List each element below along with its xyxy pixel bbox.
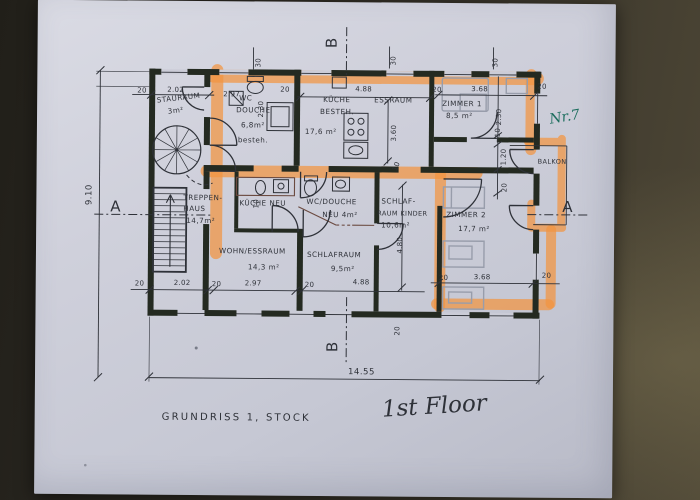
room-label-kueche-besteh-area: 17,6 m²	[305, 127, 337, 136]
section-marker-a-left: A	[110, 197, 121, 215]
dim-bottom-7: 3.68	[474, 273, 491, 281]
dim-top-5: 20	[432, 86, 442, 94]
shower-icon	[267, 103, 293, 131]
section-line-b-bottom	[346, 297, 347, 363]
dim-b-offset: 20	[393, 326, 401, 336]
paper-speck	[195, 346, 198, 349]
room-label-wc-neu-2: NEU 4m²	[322, 210, 357, 219]
room-label-wc-area: 6,8m²	[241, 120, 265, 129]
plan-title-german: GRUNDRISS 1, STOCK	[162, 412, 311, 424]
dim-wall30-0: 30	[254, 58, 262, 68]
dim-top-7: 20	[537, 83, 547, 91]
dim-top-6: 3.68	[471, 85, 488, 93]
room-label-wc-2: DOUCHE	[236, 105, 270, 114]
section-marker-b-top: B	[323, 38, 341, 48]
dim-bottom-5: 4.88	[353, 278, 370, 286]
room-label-essraum: ESSRAUM	[374, 95, 412, 104]
section-marker-a-right: A	[562, 198, 573, 216]
dim-top-1: 2.02	[167, 86, 184, 94]
dim-total-width: 14.55	[348, 367, 375, 377]
new-wc-sink-icon	[332, 177, 349, 191]
dim-bottom-4: 20	[305, 281, 315, 289]
dim-top-0: 20	[137, 87, 147, 95]
green-number-note: Nr.7	[547, 107, 581, 128]
dim-wall30-2: 30	[491, 58, 499, 68]
highlight-left-wall	[216, 70, 217, 253]
dim-wc-side-0: 2.30	[257, 101, 265, 118]
room-label-wohn-area: 14,3 m²	[248, 262, 280, 271]
dim-bottom-1: 2.02	[174, 279, 191, 287]
room-label-zimmer1: ZIMMER 1	[442, 99, 482, 108]
room-label-kueche-besteh: KÜCHE	[323, 95, 350, 104]
dim-essraum-height: 3.60	[390, 125, 398, 142]
room-label-wc-neu: WC/DOUCHE	[306, 197, 357, 206]
dim-wall30-1: 30	[389, 56, 397, 66]
straight-stair	[153, 188, 187, 272]
new-kitchen-sink-icon	[255, 179, 288, 194]
photo-background: STAURAUM 3m² WC DOUCHE 6,8m² besteh. KÜC…	[0, 0, 700, 500]
room-label-treppenhaus-2: HAUS	[183, 204, 205, 213]
room-label-kinder: SCHLAF-	[381, 196, 415, 205]
room-label-wc-note: besteh.	[238, 135, 268, 144]
room-label-treppenhaus-area: 14,7m²	[186, 216, 215, 225]
section-marker-b-bottom: B	[323, 342, 341, 352]
room-label-wc: WC	[239, 93, 252, 102]
dim-z1-side-0: 2.30	[495, 109, 503, 126]
dim-top-4: 4.88	[355, 85, 372, 93]
sink-icon	[344, 142, 368, 158]
room-label-treppenhaus: TREPPEN-	[182, 193, 222, 202]
room-label-schlafraum-area: 9,5m²	[331, 264, 355, 273]
paper-speck	[84, 464, 87, 467]
dim-top-2: 2.97	[223, 90, 240, 98]
paper-sheet: STAURAUM 3m² WC DOUCHE 6,8m² besteh. KÜC…	[34, 0, 616, 498]
plan-title-english: 1st Floor	[381, 390, 489, 423]
dim-z1-side-3: 20	[500, 183, 508, 193]
dim-bottom-0: 20	[135, 280, 145, 288]
dim-wc-side-1: 10	[252, 199, 260, 209]
room-label-kueche-neu: KÜCHE NEU	[239, 198, 286, 207]
dim-total-height: 9.10	[84, 184, 94, 205]
stove-icon	[344, 113, 368, 140]
room-label-staurraum-area: 3m²	[167, 105, 184, 116]
dim-bottom-2: 20	[212, 280, 222, 288]
dim-z1-side-2: 1.20	[500, 149, 508, 166]
room-label-wohn: WOHN/ESSRAUM	[219, 246, 286, 256]
highlight-zimmer2-right	[551, 230, 552, 304]
floor-plan: STAURAUM 3m² WC DOUCHE 6,8m² besteh. KÜC…	[34, 0, 616, 498]
room-label-zimmer2: ZIMMER 2	[446, 210, 486, 219]
room-label-kinder-area: 10,6m²	[381, 220, 410, 229]
room-label-kinder-2: RAUM KINDER	[377, 209, 427, 217]
room-label-kueche-besteh-2: BESTEH.	[320, 107, 354, 116]
door-wohnraum	[272, 206, 298, 232]
room-label-schlafraum: SCHLAFRAUM	[307, 250, 361, 259]
zimmer2-bed-sketch	[443, 187, 485, 309]
room-label-zimmer2-area: 17,7 m²	[458, 224, 490, 233]
dim-top-3: 20	[280, 86, 290, 94]
titles: GRUNDRISS 1, STOCK 1st Floor Nr.7	[162, 104, 582, 426]
dim-bottom-6: 20	[439, 274, 449, 282]
room-label-zimmer1-area: 8,5 m²	[446, 111, 473, 120]
dim-kinder-height: 4.80	[396, 237, 404, 254]
dim-z1-side-1: 10	[494, 128, 502, 138]
room-label-balkon: BALKON	[538, 158, 567, 166]
highlight-zimmer2-bottom	[437, 304, 549, 305]
dim-bottom-3: 2.97	[245, 279, 262, 287]
dim-bottom-8: 20	[542, 272, 552, 280]
